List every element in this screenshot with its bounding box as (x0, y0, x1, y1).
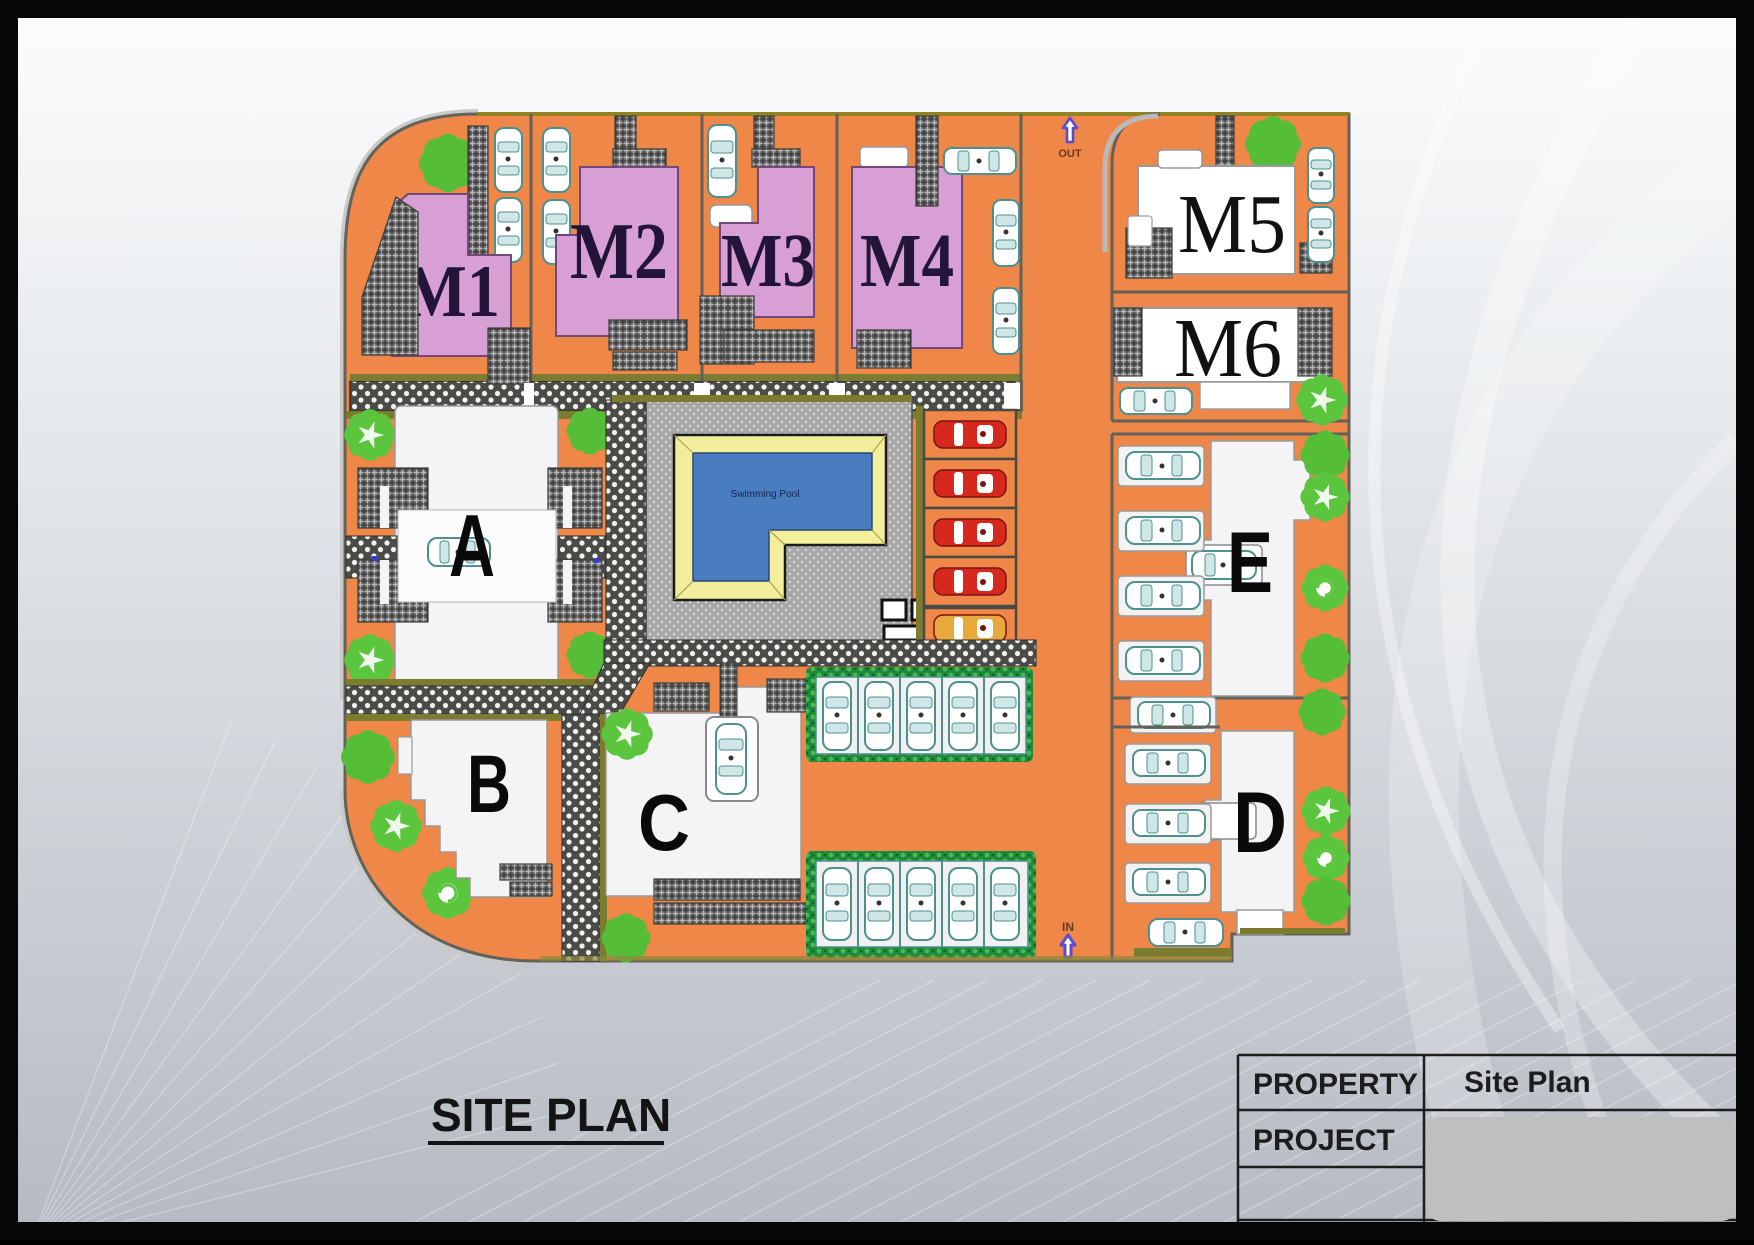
svg-text:B: B (467, 739, 511, 830)
svg-text:M5: M5 (1178, 178, 1286, 271)
svg-text:D: D (1233, 775, 1287, 871)
svg-text:PROJECT: PROJECT (1253, 1124, 1395, 1157)
svg-text:M6: M6 (1174, 302, 1282, 395)
svg-text:M2: M2 (570, 208, 668, 296)
svg-text:M4: M4 (860, 219, 954, 303)
svg-text:Site Plan: Site Plan (1464, 1066, 1591, 1099)
svg-text:IN: IN (1062, 920, 1074, 934)
svg-text:E: E (1227, 515, 1273, 611)
svg-text:M3: M3 (721, 219, 815, 303)
svg-text:Swimming Pool: Swimming Pool (731, 489, 800, 500)
svg-text:A: A (449, 496, 495, 595)
svg-text:SITE PLAN: SITE PLAN (431, 1089, 671, 1141)
svg-text:OUT: OUT (1058, 148, 1082, 160)
svg-text:C: C (638, 778, 690, 867)
svg-text:PROPERTY: PROPERTY (1253, 1068, 1418, 1101)
